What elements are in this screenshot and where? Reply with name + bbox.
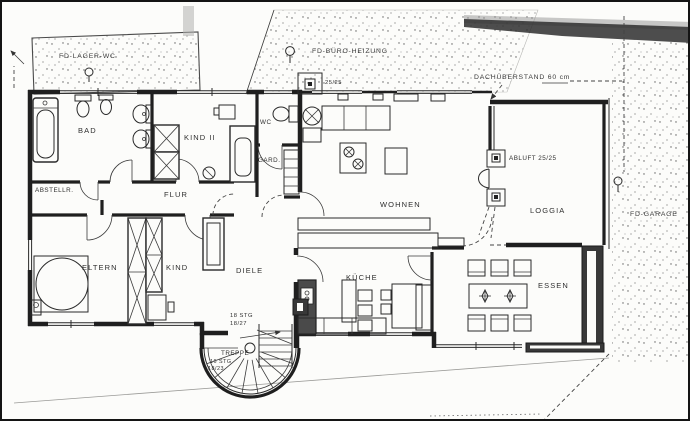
room-label-bad: BAD [78,126,97,135]
room-label-wohnen: WOHNEN [380,200,421,209]
wardrobe-kind2 [154,125,179,179]
bed-kind [203,218,224,270]
room-label-eltern: ELTERN [82,263,118,272]
room-label-loggia: LOGGIA [530,206,565,215]
scanned-floorplan-page: FD-LAGER-WC FD-BÜRO-HEIZUNG DACHÜBERSTAN… [0,0,690,421]
abluft-label: ABLUFT 25/25 [509,155,557,162]
room-label-treppe: TREPPE [221,350,249,357]
room-label-flur: FLUR [164,190,188,199]
room-label-diele: DIELE [236,266,263,275]
room-label-kind2: KIND II [184,133,216,142]
bathtub [33,98,58,162]
room-label-essen: ESSEN [538,281,569,290]
room-label-kueche: KÜCHE [346,273,378,282]
bed-kind2 [230,126,255,182]
room-label-gard: GARD. [258,157,280,164]
floorplan-drawing: FD-LAGER-WC FD-BÜRO-HEIZUNG DACHÜBERSTAN… [2,2,690,421]
roof-area-lager-wc [32,32,200,94]
fd-lager-wc-label: FD-LAGER-WC [59,53,116,60]
room-label-wc: WC [260,119,272,126]
room-label-kind: KIND [166,263,188,272]
stairs-up-line2: 18/27 [230,321,247,327]
roof-area-garage [612,42,688,362]
fd-buero-heizung-label: FD-BÜRO-HEIZUNG [312,47,388,55]
stairs-down-line2: 18/23 [208,366,224,372]
fd-garage-label: FD-GARAGE [630,211,678,218]
room-label-abstellr: ABSTELLR. [35,187,73,194]
dachueberstand-label: DACHÜBERSTAND 60 cm [474,73,570,81]
stairs-up-line1: 18 STG [230,313,253,319]
stairs-down-line1: 16 STG [210,359,232,365]
chimney-size-label: 25/25 [325,80,342,86]
